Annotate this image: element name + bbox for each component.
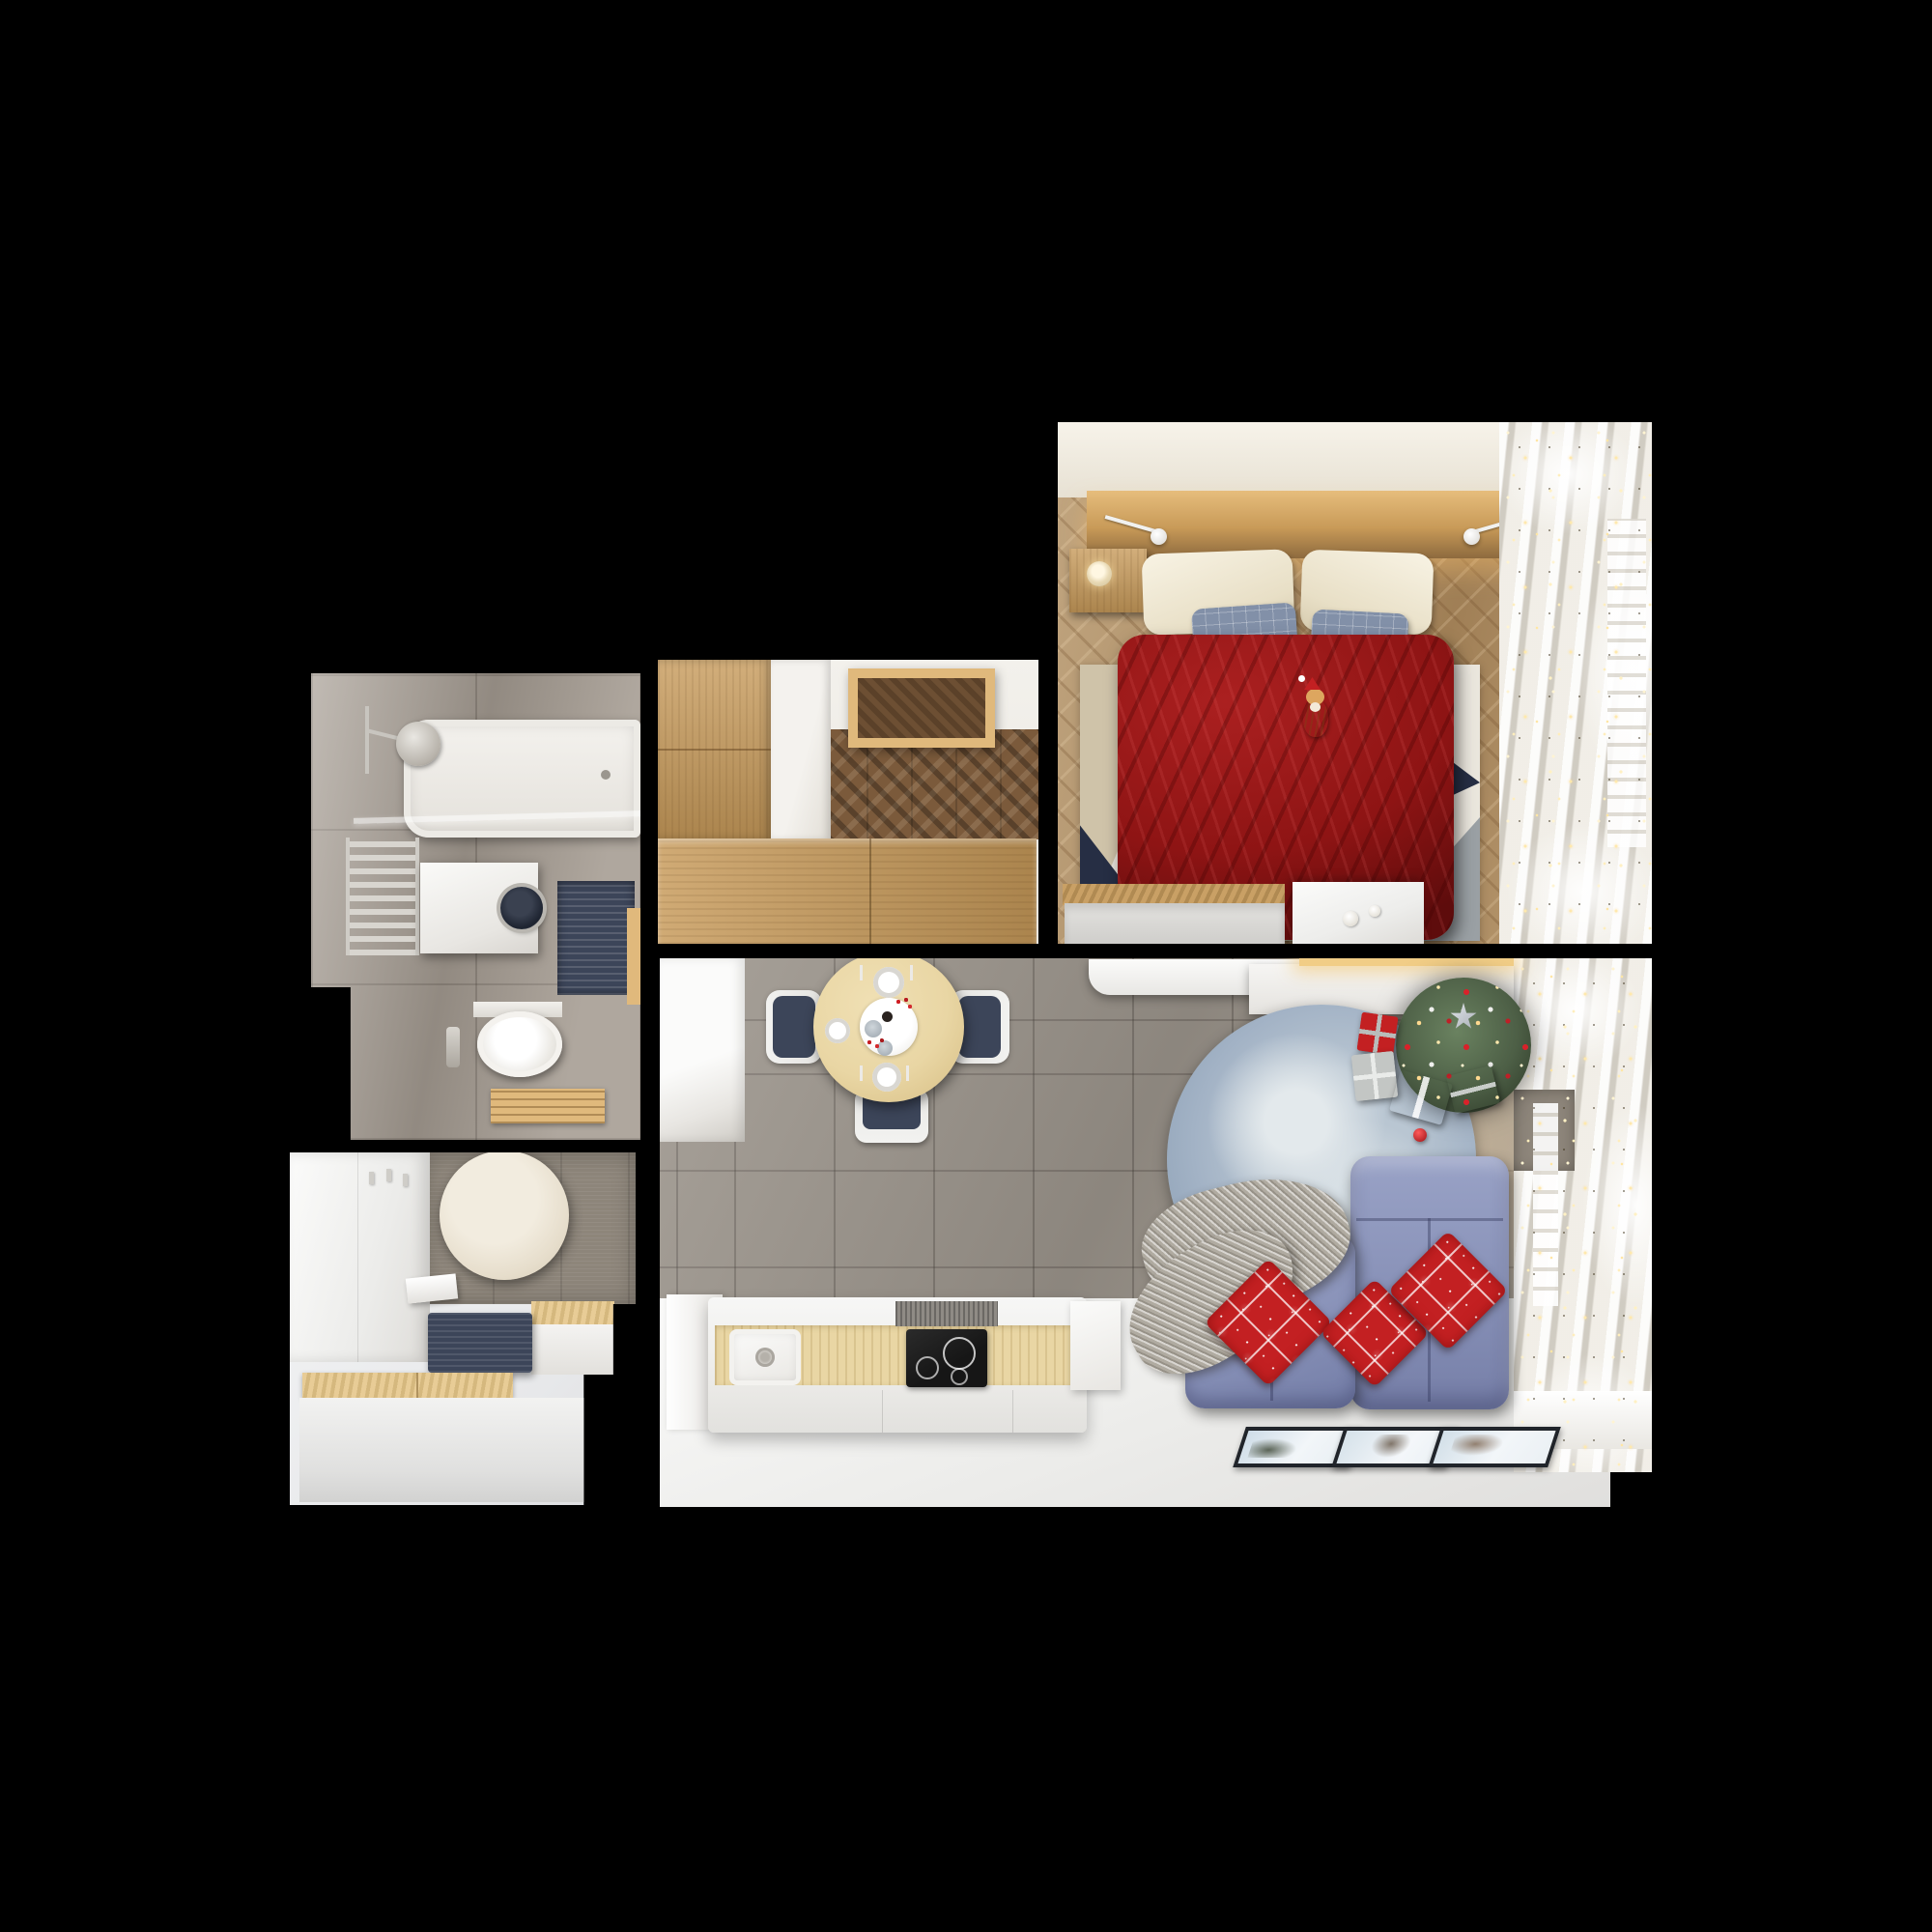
navy-bath-mat [557, 881, 635, 995]
cat-chest [1310, 702, 1321, 712]
hob-ring-medium [916, 1356, 939, 1379]
bedroom-side-table [1293, 882, 1424, 944]
towel-radiator [346, 838, 419, 955]
red-bauble [1413, 1128, 1427, 1142]
bench-wood-row [302, 1373, 513, 1398]
washer-door [500, 887, 543, 929]
under-bed-drawer-front [1065, 903, 1285, 944]
cutlery-top [860, 965, 863, 980]
ceiling-light-box [848, 668, 995, 748]
wood-duckboard [491, 1089, 605, 1123]
island-vent-tray [895, 1301, 998, 1326]
coat-hook-3 [403, 1174, 408, 1186]
cup-large [1343, 911, 1358, 926]
round-mirror [440, 1152, 569, 1280]
round-dining-table [813, 958, 964, 1102]
navy-bench-cushion [428, 1313, 532, 1373]
open-white-door [771, 660, 831, 840]
room-hallway [290, 1152, 636, 1505]
hob-ring-small [951, 1368, 968, 1385]
gift-box-red-top [1356, 1012, 1398, 1056]
lamp-head [1151, 528, 1167, 545]
plate-top [873, 967, 904, 998]
bathtub-drain [601, 770, 611, 780]
kitchen-island-counter [708, 1297, 1087, 1433]
island-front-seam-1 [882, 1390, 883, 1433]
room-bathroom [311, 673, 640, 1140]
plate-left [825, 1018, 850, 1043]
door-threshold [627, 908, 640, 1005]
wardrobe-door-seam [357, 1152, 358, 1362]
candle [1087, 561, 1112, 586]
bowl-1 [865, 1020, 882, 1037]
centerpiece-bottle [882, 1011, 893, 1022]
island-front-seam-2 [1012, 1390, 1013, 1433]
shower-pipe [365, 706, 369, 774]
cup-small [1369, 905, 1380, 917]
chair-seat [773, 996, 815, 1058]
wardrobe-divider [869, 838, 871, 944]
white-ledge [406, 1273, 458, 1303]
cutlery-bottom [860, 1065, 863, 1081]
island-right-block [1070, 1301, 1121, 1390]
red-berry-sprig-2 [864, 1037, 887, 1054]
wall-lamp-left [1104, 515, 1176, 548]
tall-white-cabinet [660, 958, 745, 1142]
oak-wardrobe-bottom [658, 838, 1037, 944]
apartment-render [0, 0, 1932, 1932]
red-berry-sprig-1 [894, 996, 915, 1011]
gift-box-gray [1351, 1051, 1399, 1101]
living-string-lights [1514, 958, 1652, 1472]
plate-bottom [872, 1063, 901, 1092]
toilet-bowl [477, 1011, 562, 1077]
flush-plate [446, 1027, 460, 1067]
floor-frame-3 [1428, 1427, 1561, 1467]
chair-seat [958, 996, 1001, 1058]
room-wardrobe [658, 660, 1038, 944]
coat-hook-1 [369, 1172, 374, 1184]
lamp-head [1463, 528, 1480, 545]
room-living-kitchen [660, 958, 1652, 1507]
bench-white-right [531, 1324, 614, 1375]
hob-ring-large [943, 1337, 976, 1370]
sink-drain [755, 1348, 775, 1367]
white-wardrobe [290, 1152, 430, 1362]
santa-hat-pom [1298, 675, 1305, 682]
white-bench-base [299, 1398, 585, 1502]
bedroom-string-lights [1499, 422, 1652, 944]
induction-hob [906, 1329, 987, 1387]
bench-wood-right [531, 1301, 614, 1324]
island-sink [729, 1329, 801, 1385]
room-bedroom [1058, 422, 1652, 944]
frame-art [1247, 1438, 1299, 1458]
frame-art [1449, 1435, 1506, 1456]
shower-head [396, 722, 440, 766]
coat-hook-2 [386, 1169, 391, 1181]
under-bed-drawer-wood [1063, 884, 1285, 905]
under-shelf-gold-light [1299, 958, 1514, 966]
oak-cabinet-left [658, 660, 773, 840]
cabinet-seam [658, 749, 773, 751]
bench-wood-seam [416, 1373, 418, 1398]
cat-with-santa-hat [1297, 685, 1336, 741]
frame-art [1367, 1435, 1413, 1458]
